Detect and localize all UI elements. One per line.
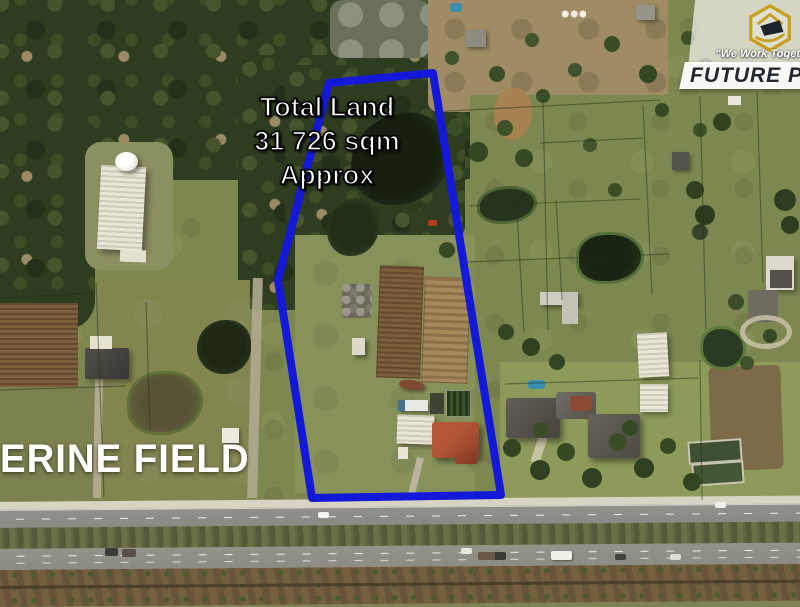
- house-hexagon-icon: [744, 2, 796, 54]
- agency-logo: “We Work Toget FUTURE PAR: [660, 0, 800, 100]
- land-area-line-3: Approx: [212, 158, 442, 192]
- aerial-listing-image: { "overlay": { "land_area": { "lines": […: [0, 0, 800, 600]
- land-area-line-2: 31 726 sqm: [212, 124, 442, 158]
- land-area-line-1: Total Land: [212, 90, 442, 124]
- logo-brand-name: FUTURE PAR: [690, 64, 800, 88]
- logo-tagline: “We Work Toget: [698, 48, 800, 60]
- land-area-label: Total Land 31 726 sqm Approx: [212, 90, 442, 192]
- suburb-label: ERINE FIELD: [0, 437, 250, 482]
